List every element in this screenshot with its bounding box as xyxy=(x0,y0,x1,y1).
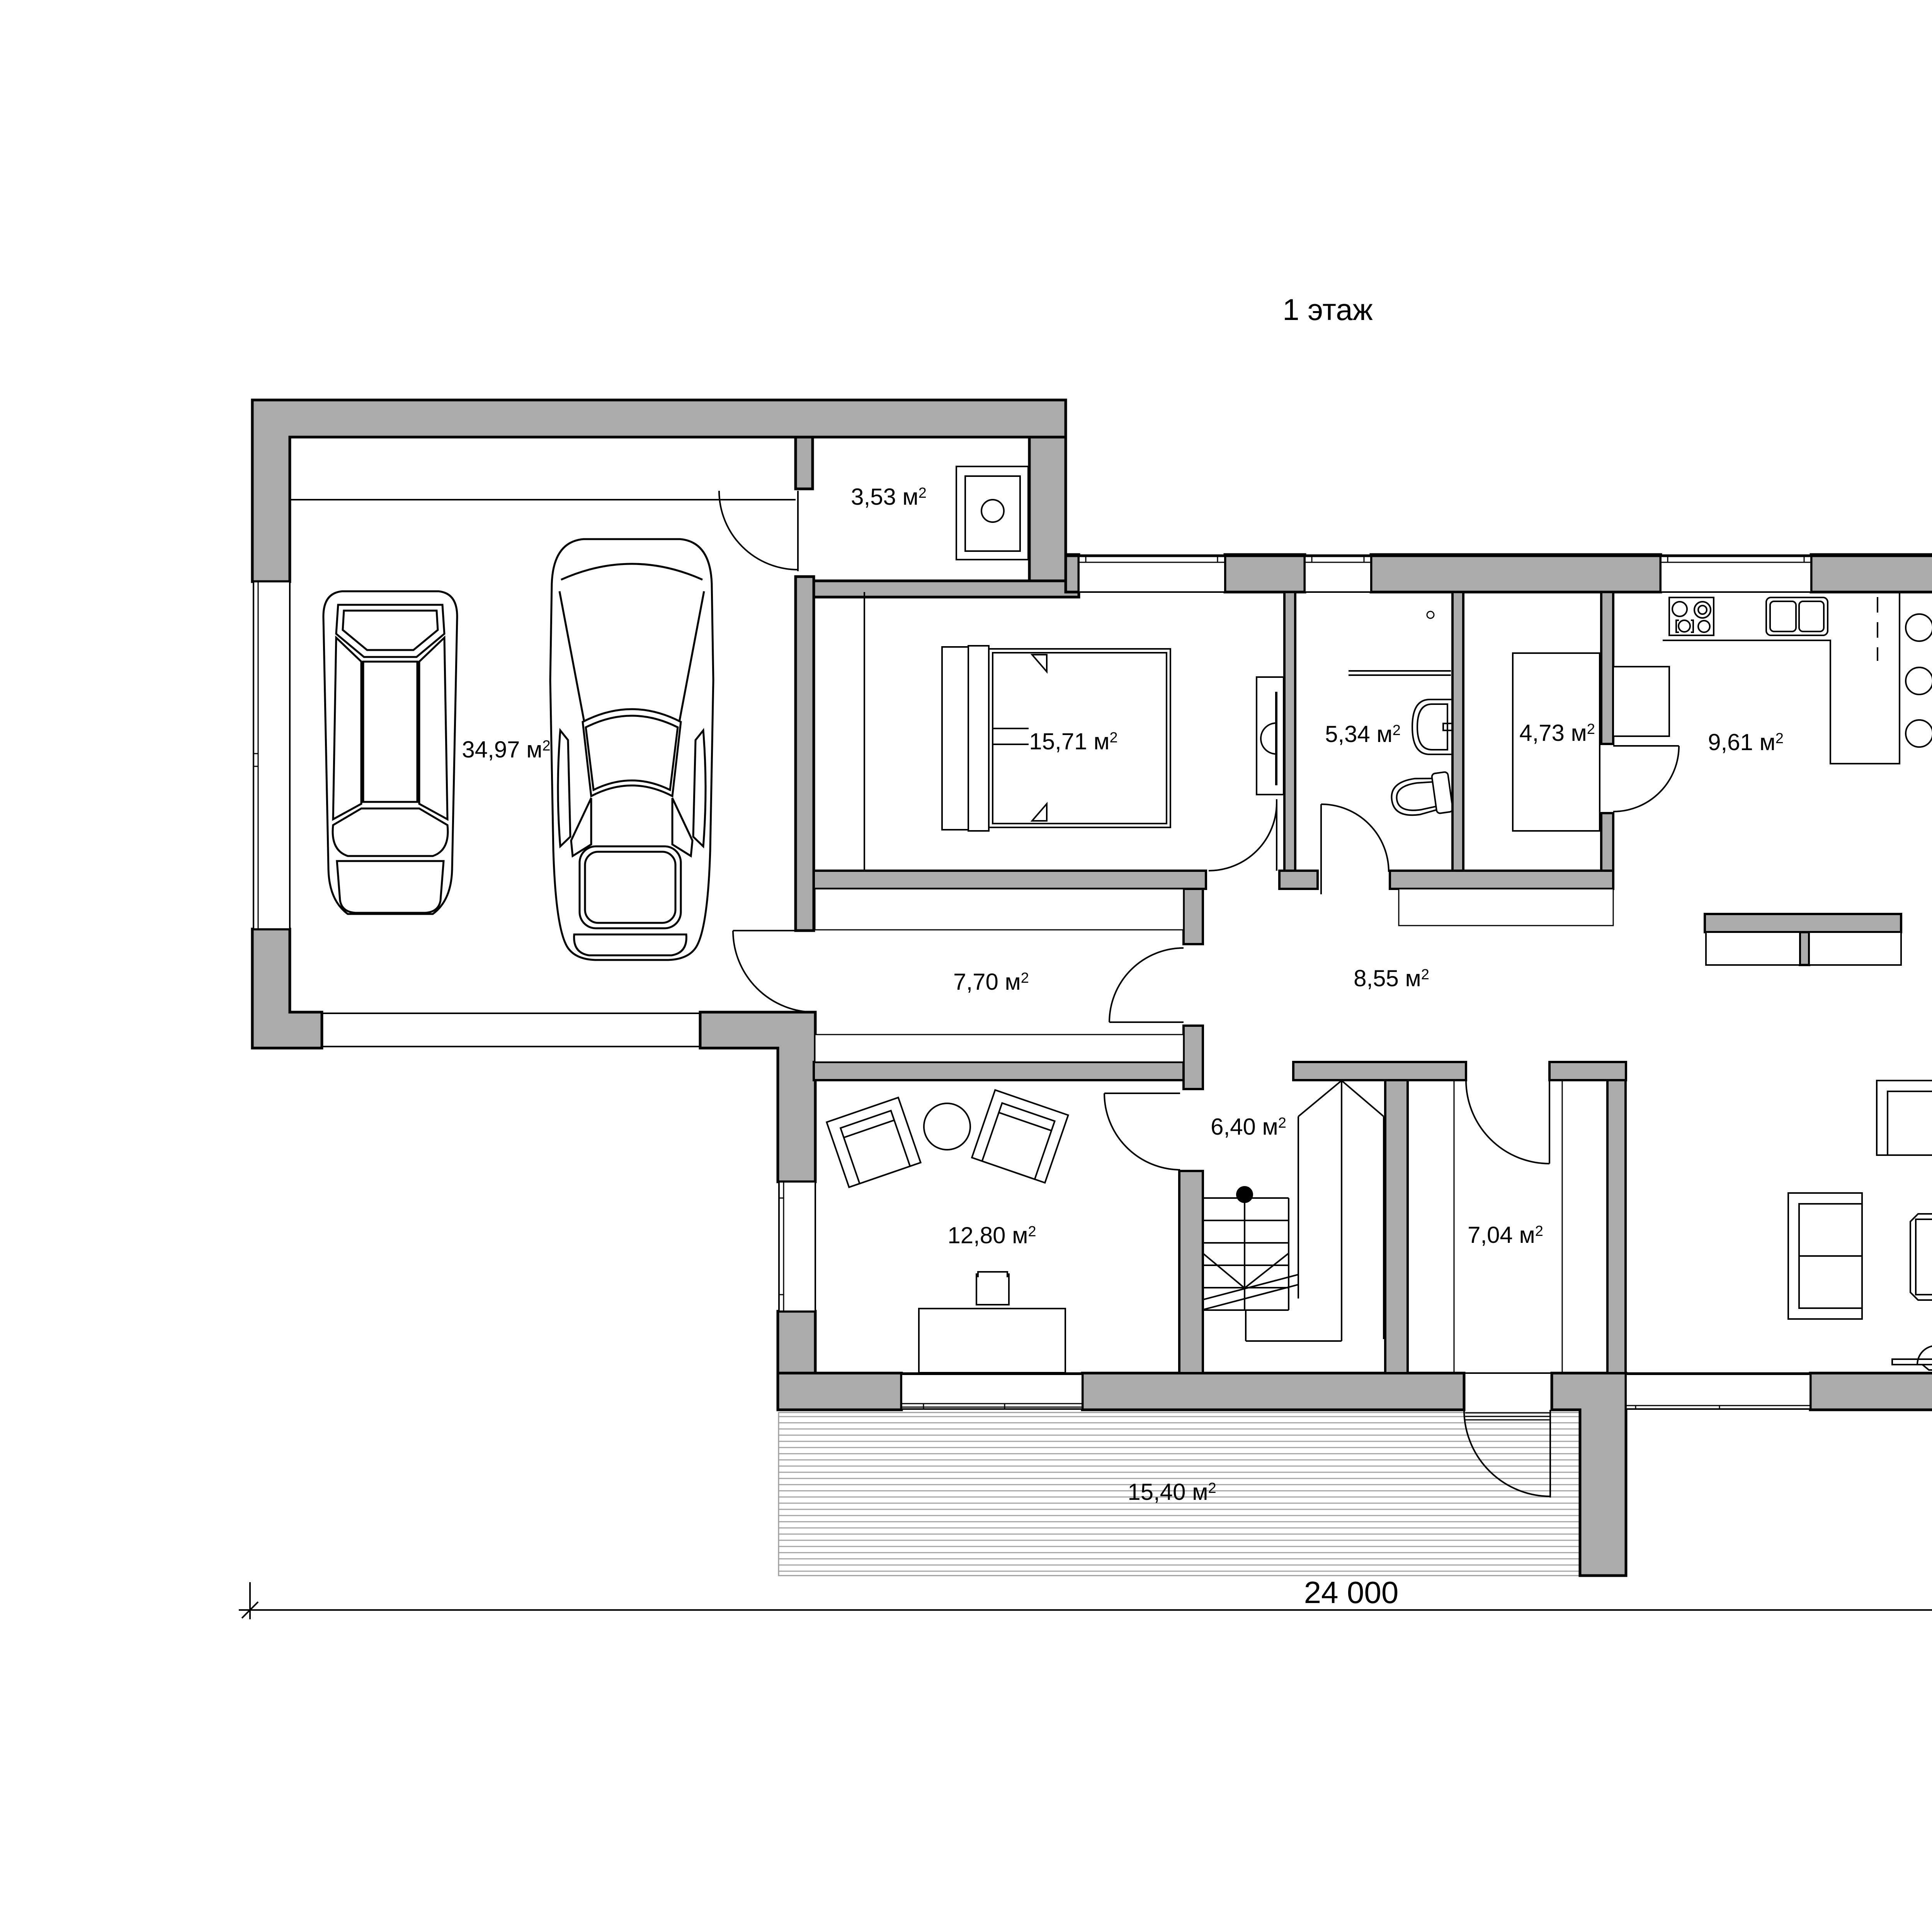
svg-text:9,61 м2: 9,61 м2 xyxy=(1708,729,1784,755)
svg-text:8,55 м2: 8,55 м2 xyxy=(1354,965,1429,991)
svg-text:7,04 м2: 7,04 м2 xyxy=(1468,1222,1543,1248)
svg-text:15,71 м2: 15,71 м2 xyxy=(1029,728,1117,754)
svg-text:7,70 м2: 7,70 м2 xyxy=(953,969,1029,995)
svg-text:1 этаж: 1 этаж xyxy=(1282,293,1373,327)
svg-text:5,34 м2: 5,34 м2 xyxy=(1325,721,1401,747)
svg-text:15,40 м2: 15,40 м2 xyxy=(1128,1479,1216,1505)
svg-text:6,40 м2: 6,40 м2 xyxy=(1211,1114,1286,1140)
svg-text:3,53 м2: 3,53 м2 xyxy=(851,484,927,510)
svg-text:34,97 м2: 34,97 м2 xyxy=(462,737,550,762)
svg-text:4,73 м2: 4,73 м2 xyxy=(1519,720,1595,746)
svg-text:24 000: 24 000 xyxy=(1304,1575,1399,1610)
svg-text:12,80 м2: 12,80 м2 xyxy=(947,1222,1036,1248)
